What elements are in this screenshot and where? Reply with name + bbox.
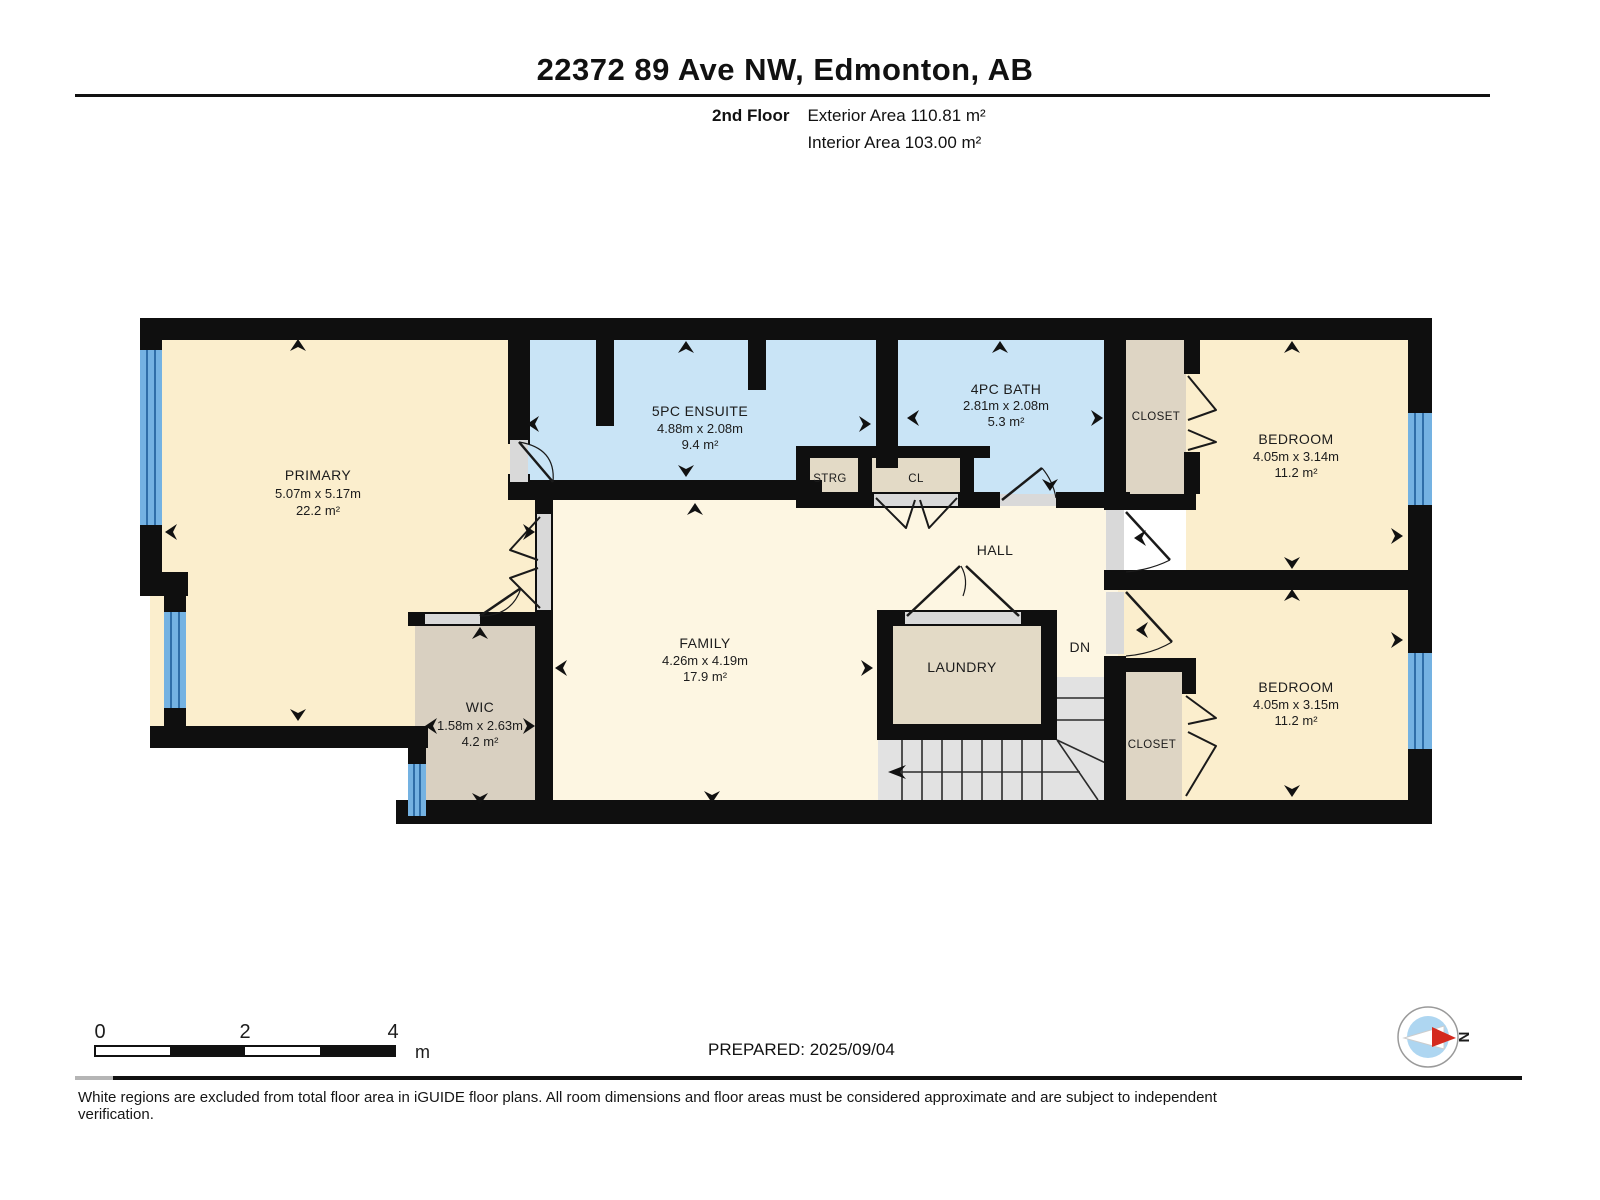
scale-tick-4: 4 — [387, 1021, 398, 1043]
label-ensuite-dims: 4.88m x 2.08m — [657, 421, 743, 436]
label-hall: HALL — [977, 542, 1014, 558]
label-bedroom-top-area: 11.2 m² — [1274, 465, 1318, 480]
room-wic — [415, 620, 547, 812]
label-bedroom-top-dims: 4.05m x 3.14m — [1253, 449, 1339, 464]
label-closet-top: CLOSET — [1132, 411, 1180, 423]
label-primary-area: 22.2 m² — [296, 503, 341, 518]
scale-tick-0: 0 — [94, 1021, 105, 1043]
label-strg: STRG — [813, 473, 847, 485]
label-wic: WIC — [466, 699, 494, 715]
label-bath: 4PC BATH — [971, 381, 1042, 397]
window — [140, 350, 162, 525]
label-ensuite: 5PC ENSUITE — [652, 403, 748, 419]
label-bedroom-bottom-dims: 4.05m x 3.15m — [1253, 697, 1339, 712]
label-family: FAMILY — [679, 635, 730, 651]
compass-icon: N — [1398, 1007, 1472, 1067]
label-family-area: 17.9 m² — [683, 669, 728, 684]
room-laundry — [893, 626, 1041, 724]
label-wic-dims: 1.58m x 2.63m — [437, 718, 523, 733]
label-cl: CL — [908, 473, 924, 485]
closet-bottom — [1126, 665, 1182, 805]
label-closet-bottom: CLOSET — [1128, 739, 1176, 751]
footer-divider-gray — [75, 1076, 113, 1080]
disclaimer-text: White regions are excluded from total fl… — [78, 1089, 1278, 1123]
scale-tick-2: 2 — [239, 1021, 250, 1043]
scale-bar: 0 2 4 m — [94, 1021, 430, 1062]
label-wic-area: 4.2 m² — [462, 734, 500, 749]
label-laundry: LAUNDRY — [927, 659, 997, 675]
label-bedroom-top: BEDROOM — [1258, 431, 1333, 447]
window — [1408, 413, 1432, 505]
floorplan-svg: PRIMARY 5.07m x 5.17m 22.2 m² 5PC ENSUIT… — [0, 0, 1600, 1200]
label-family-dims: 4.26m x 4.19m — [662, 653, 748, 668]
label-bedroom-bottom-area: 11.2 m² — [1274, 713, 1318, 728]
window — [1408, 653, 1432, 749]
label-bath-area: 5.3 m² — [988, 414, 1026, 429]
prepared-date: PREPARED: 2025/09/04 — [708, 1040, 895, 1060]
window — [408, 764, 426, 816]
label-bedroom-bottom: BEDROOM — [1258, 679, 1333, 695]
label-bath-dims: 2.81m x 2.08m — [963, 398, 1049, 413]
window — [164, 612, 186, 708]
label-ensuite-area: 9.4 m² — [682, 437, 720, 452]
compass-north-label: N — [1455, 1032, 1472, 1043]
door-bedroom-top — [1126, 512, 1170, 572]
label-dn: DN — [1069, 639, 1090, 655]
label-primary: PRIMARY — [285, 467, 352, 483]
scale-unit: m — [415, 1042, 430, 1062]
floorplan-page: 22372 89 Ave NW, Edmonton, AB 2nd Floor … — [0, 0, 1600, 1200]
footer-divider — [75, 1076, 1522, 1080]
label-primary-dims: 5.07m x 5.17m — [275, 486, 361, 501]
